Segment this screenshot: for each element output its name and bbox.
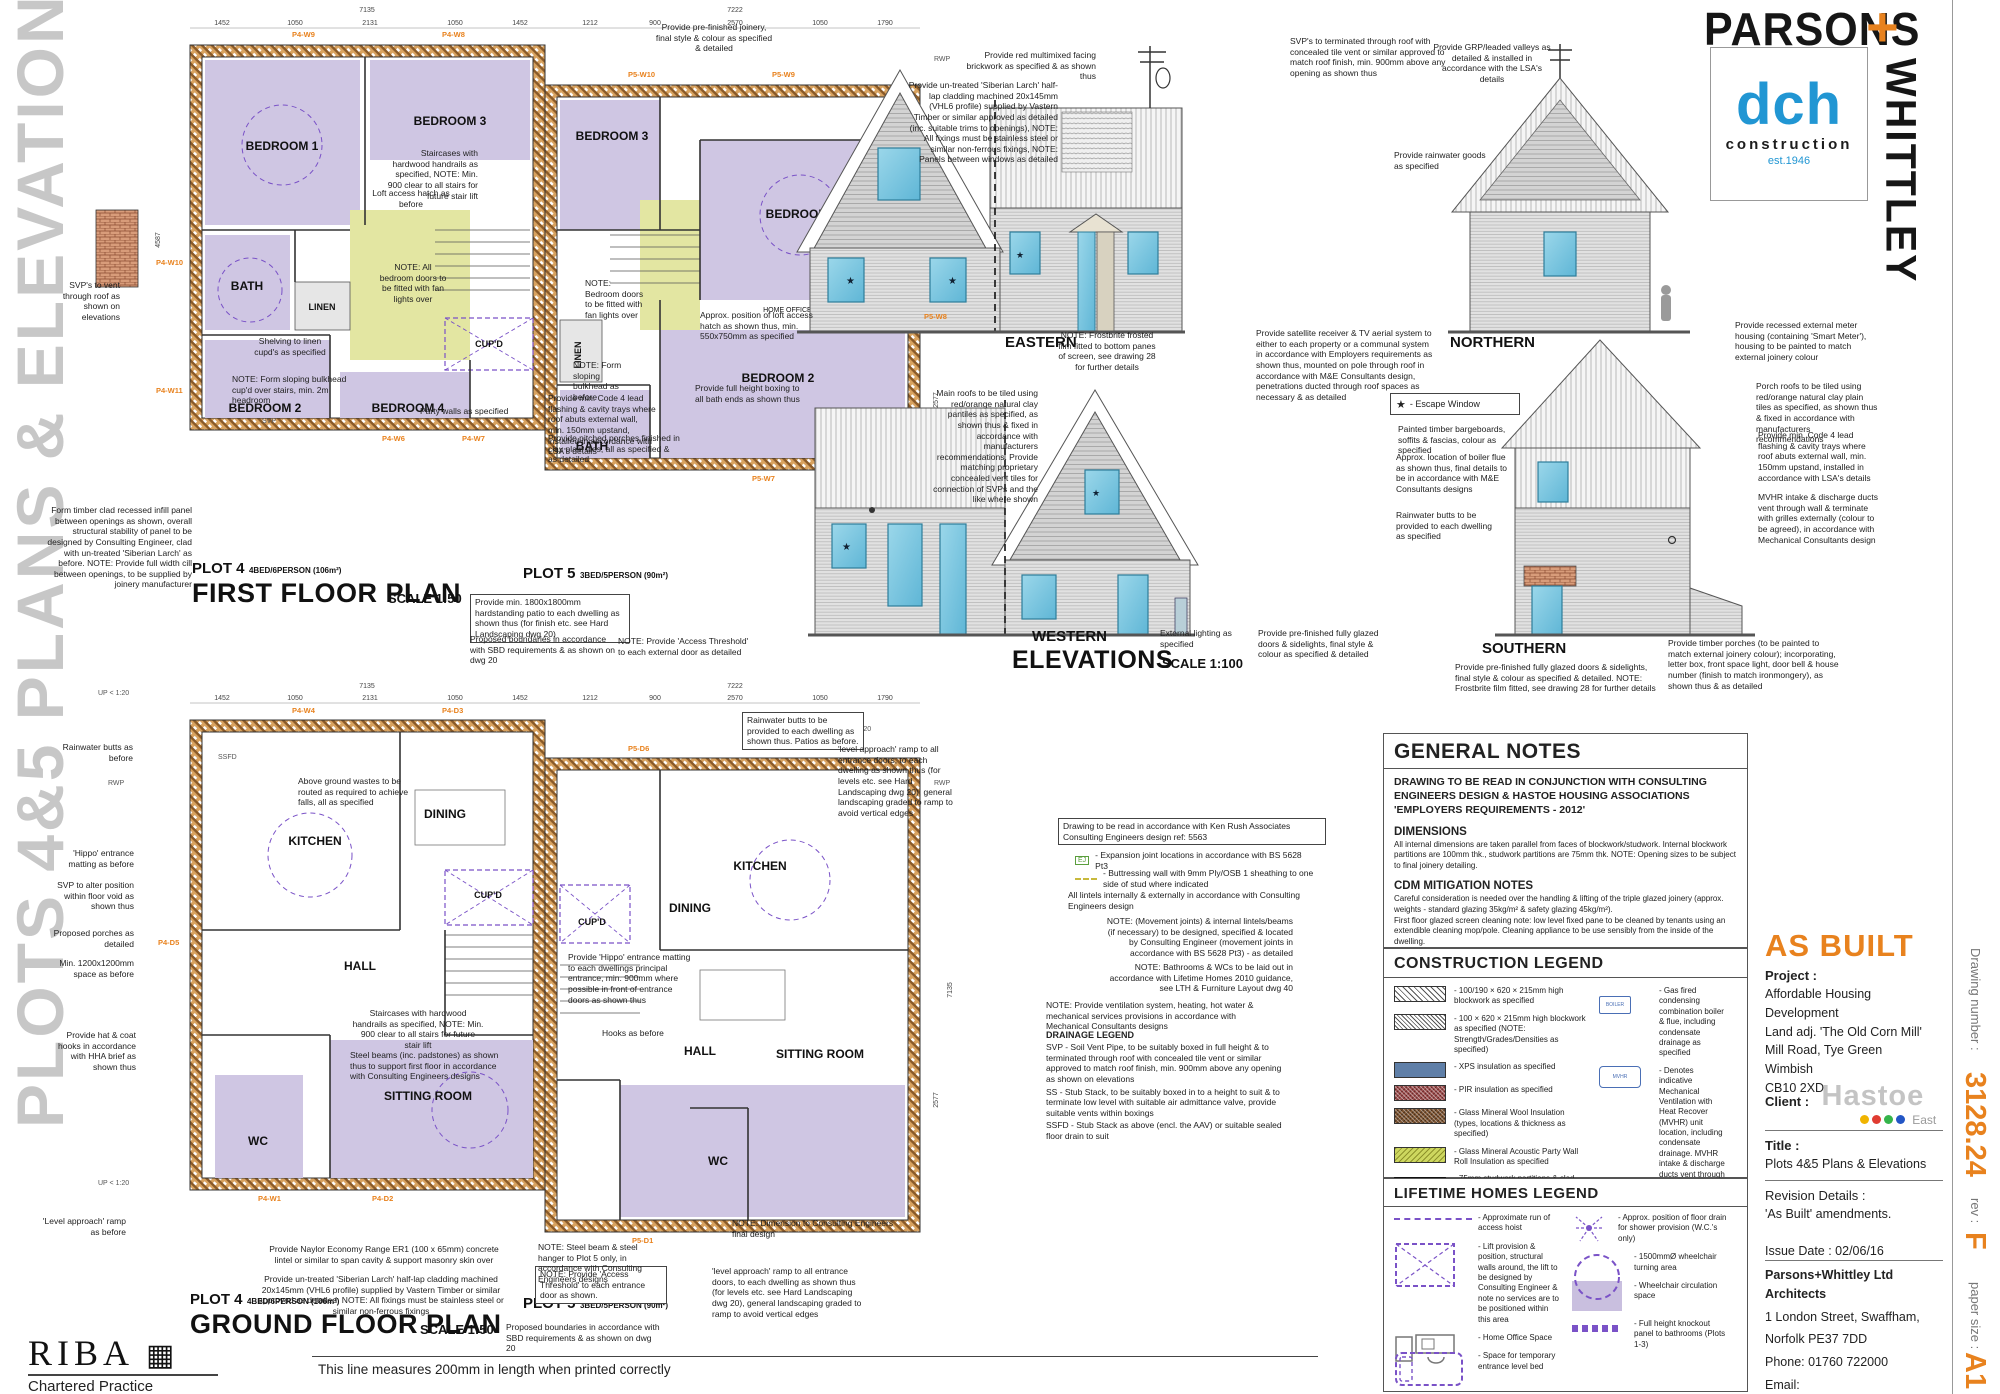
- note-timber-porches: Provide timber porches (to be painted to…: [1668, 638, 1840, 691]
- note-shelving: Shelving to linen cupd's as specified: [250, 336, 330, 357]
- firm-name: Parsons+Whittley Ltd Architects: [1765, 1266, 1947, 1304]
- room-label-p4-cupd: CUP'D: [475, 339, 503, 349]
- rwp-label-2: RWP: [108, 780, 124, 787]
- drawing-number: 3128.24: [1958, 1072, 1991, 1177]
- ff-plot4-spec: 4BED/6PERSON (106m²): [249, 566, 341, 575]
- ssfd-label-1: SSFD: [218, 754, 237, 761]
- western-label: WESTERN: [1032, 628, 1107, 645]
- buttress-symbol: [1075, 878, 1097, 880]
- pir-swatch: [1394, 1085, 1446, 1101]
- blockwork2-swatch: [1394, 1014, 1446, 1030]
- note-steel-hanger: NOTE: Steel beam & steel hanger to Plot …: [538, 1242, 666, 1285]
- note-svp-alter: SVP to alter position within floor void …: [50, 880, 134, 912]
- bed-icon: [1394, 1351, 1472, 1372]
- revision-label: Revision Details :: [1765, 1188, 1947, 1203]
- tag-p4w7: P4-W7: [462, 434, 485, 443]
- tag-p4w4: P4-W4: [292, 706, 315, 715]
- architect-block: Parsons+Whittley Ltd Architects 1 London…: [1765, 1266, 1947, 1394]
- issue-date: Issue Date : 02/06/16: [1765, 1242, 1947, 1261]
- note-staircases-gf: Staircases with hardwood handrails as sp…: [352, 1008, 484, 1051]
- general-notes-title: GENERAL NOTES: [1384, 734, 1747, 769]
- tag-p4w10: P4-W10: [156, 258, 183, 267]
- room-label-g4-hall: HALL: [344, 959, 376, 973]
- svg-text:1452: 1452: [512, 20, 528, 27]
- note-staircases-ff: Staircases with hardwood handrails as sp…: [382, 148, 478, 201]
- tag-p5w7: P5-W7: [752, 474, 775, 483]
- ff-plot5-spec: 3BED/5PERSON (90m²): [580, 571, 668, 580]
- room-label-p4-bedroom3: BEDROOM 3: [414, 114, 487, 128]
- lt-office: - Home Office Space: [1394, 1333, 1562, 1343]
- drainage-ss: SS - Stub Stack, to be suitably boxed in…: [1046, 1087, 1284, 1119]
- turning-circle-icon: [1572, 1252, 1628, 1273]
- note-porches-ff: Provide pitched porches finished in clay…: [548, 433, 680, 465]
- room-label-g5-wc: WC: [708, 1154, 728, 1168]
- lt-drain: - Approx. position of floor drain for sh…: [1572, 1213, 1730, 1244]
- elevations-scale: SCALE 1:100: [1162, 656, 1243, 671]
- dimensions-body: All internal dimensions are taken parall…: [1394, 840, 1737, 872]
- tag-p4w6: P4-W6: [382, 434, 405, 443]
- svg-text:1212: 1212: [582, 20, 598, 27]
- dch-est: est.1946: [1711, 155, 1867, 167]
- ff-plot5-label: PLOT 5: [523, 565, 576, 582]
- tag-p5d6: P5-D6: [628, 744, 649, 753]
- tag-p5w10: P5-W10: [628, 70, 655, 79]
- project-line-1: Affordable Housing Development: [1765, 985, 1947, 1023]
- note-grp-valleys: Provide GRP/leaded valleys as detailed &…: [1432, 42, 1552, 85]
- note-glazed-doors: Provide pre-finished fully glazed doors …: [1258, 628, 1380, 660]
- room-label-g4-cupd: CUP'D: [474, 890, 502, 900]
- note-svp-roof: SVP's to terminated through roof with co…: [1290, 36, 1452, 79]
- svg-text:1212: 1212: [582, 695, 598, 702]
- lifetime-legend-box: LIFETIME HOMES LEGEND - Approximate run …: [1383, 1178, 1748, 1392]
- drawing-number-label: Drawing number :: [1968, 948, 1983, 1051]
- hastoe-dot-blue: [1896, 1115, 1905, 1124]
- room-label-g5-kitchen: KITCHEN: [733, 859, 786, 873]
- note-ventilation: NOTE: Provide ventilation system, heatin…: [1046, 1000, 1261, 1032]
- note-main-roofs: Main roofs to be tiled using red/orange …: [928, 388, 1038, 505]
- room-label-g4-dining: DINING: [424, 807, 466, 821]
- lt-hoist: - Approximate run of access hoist: [1394, 1213, 1562, 1234]
- elevations-title: ELEVATIONS: [1012, 646, 1173, 675]
- acoustic-swatch: [1394, 1147, 1446, 1163]
- svg-text:1050: 1050: [287, 20, 303, 27]
- hastoe-name: Hastoe: [1822, 1080, 1925, 1112]
- lt-lift: - Lift provision & position, structural …: [1394, 1242, 1562, 1325]
- right-strip-divider: [1952, 0, 1953, 1394]
- svg-text:★: ★: [1092, 488, 1100, 498]
- drawing-title: Plots 4&5 Plans & Elevations: [1765, 1155, 1947, 1174]
- project-block: Project : Affordable Housing Development…: [1765, 968, 1947, 1098]
- svg-text:1452: 1452: [214, 695, 230, 702]
- tag-p4d3: P4-D3: [442, 706, 463, 715]
- note-glazed-doors-frost: Provide pre-finished fully glazed doors …: [1455, 662, 1665, 694]
- lt-turning: - 1500mmØ wheelchair turning area: [1572, 1252, 1730, 1273]
- general-notes-intro: DRAWING TO BE READ IN CONJUNCTION WITH C…: [1394, 775, 1737, 818]
- note-meter: Provide recessed external meter housing …: [1735, 320, 1883, 363]
- svg-text:★: ★: [842, 542, 851, 553]
- project-line-3: Mill Road, Tye Green: [1765, 1041, 1947, 1060]
- note-loft-hatch5: Approx. position of loft access hatch as…: [700, 310, 818, 342]
- divider-3: [1765, 1260, 1943, 1261]
- title-label: Title :: [1765, 1138, 1947, 1153]
- drainage-legend-title: DRAINAGE LEGEND: [1046, 1030, 1284, 1040]
- svg-text:900: 900: [649, 695, 661, 702]
- lt-bed: - Space for temporary entrance level bed: [1394, 1351, 1562, 1372]
- note-space-before: Min. 1200x1200mm space as before: [52, 958, 134, 979]
- note-ramp: 'level approach' ramp to all entrance do…: [838, 744, 956, 818]
- home-office-icon: [1394, 1333, 1472, 1343]
- svg-text:★: ★: [846, 276, 855, 287]
- svg-text:7135: 7135: [359, 683, 375, 690]
- note-prefinished-ff: Provide pre-finished joinery, final styl…: [655, 22, 773, 54]
- blockwork1-swatch: [1394, 986, 1446, 1002]
- title-section: Title : Plots 4&5 Plans & Elevations: [1765, 1138, 1947, 1174]
- tag-p5w9: P5-W9: [772, 70, 795, 79]
- as-built-stamp: AS BUILT: [1765, 928, 1914, 964]
- up-ramp-label-3: UP < 1:20: [98, 1180, 129, 1187]
- legend-pir: - PIR insulation as specified: [1394, 1085, 1589, 1101]
- note-satellite: Provide satellite receiver & TV aerial s…: [1256, 328, 1434, 402]
- note-fan-lights: NOTE: All bedroom doors to be fitted wit…: [378, 262, 448, 305]
- svg-text:1050: 1050: [287, 695, 303, 702]
- northern-label: NORTHERN: [1450, 334, 1535, 351]
- legend-blockwork-2: - 100 × 620 × 215mm high blockwork as sp…: [1394, 1014, 1589, 1056]
- drainage-legend: DRAINAGE LEGEND SVP - Soil Vent Pipe, to…: [1046, 1030, 1284, 1142]
- note-movement: NOTE: (Movement joints) & internal linte…: [1098, 916, 1293, 959]
- hastoe-dots: East: [1822, 1111, 1925, 1129]
- drainage-svp: SVP - Soil Vent Pipe, to be suitably box…: [1046, 1042, 1284, 1085]
- note-fan-lights5: NOTE: Bedroom doors to be fitted with fa…: [585, 278, 647, 321]
- svg-text:4587: 4587: [155, 232, 162, 248]
- buttress-text: - Buttressing wall with 9mm Ply/OSB 1 sh…: [1103, 868, 1328, 889]
- dimensions-title: DIMENSIONS: [1394, 826, 1737, 838]
- room-label-p4-linen: LINEN: [309, 302, 336, 312]
- boiler-icon: BOILER: [1599, 986, 1651, 1016]
- svp-label-1: SVP: [262, 418, 276, 425]
- svg-text:7135: 7135: [947, 982, 954, 998]
- tag-p4w1: P4-W1: [258, 1194, 281, 1203]
- paper-size: A1: [1958, 1352, 1991, 1389]
- note-hooks: Provide hat & coat hooks in accordance w…: [48, 1030, 136, 1073]
- issue-date-section: Issue Date : 02/06/16: [1765, 1242, 1947, 1261]
- room-label-g4-sitting: SITTING ROOM: [384, 1089, 472, 1103]
- construction-legend-box: CONSTRUCTION LEGEND - 100/190 × 620 × 21…: [1383, 948, 1748, 1178]
- note-ramp2: 'level approach' ramp to all entrance do…: [712, 1266, 864, 1319]
- scale-check-note: This line measures 200mm in length when …: [318, 1362, 671, 1377]
- firm-address-2: Norfolk PE37 7DD: [1765, 1330, 1947, 1349]
- svg-text:2131: 2131: [362, 695, 378, 702]
- tag-p4d5: P4-D5: [158, 938, 179, 947]
- firm-address-1: 1 London Street, Swaffham,: [1765, 1308, 1947, 1327]
- room-label-g4-kitchen: KITCHEN: [288, 834, 341, 848]
- hoist-icon: [1394, 1213, 1472, 1234]
- legend-acoustic: - Glass Mineral Acoustic Party Wall Roll…: [1394, 1147, 1589, 1168]
- svg-text:★: ★: [1016, 250, 1024, 260]
- svg-text:7222: 7222: [727, 7, 743, 14]
- xps-swatch: [1394, 1062, 1446, 1078]
- note-ramp-before: 'Level approach' ramp as before: [42, 1216, 126, 1237]
- gf-scale: SCALE 1:50: [420, 1322, 494, 1337]
- firm-phone: Phone: 01760 722000: [1765, 1353, 1947, 1372]
- project-label: Project :: [1765, 968, 1947, 983]
- legend-blockwork-1: - 100/190 × 620 × 215mm high blockwork a…: [1394, 986, 1589, 1007]
- svg-text:7222: 7222: [727, 683, 743, 690]
- svg-text:1050: 1050: [447, 695, 463, 702]
- buttress-legend-row: - Buttressing wall with 9mm Ply/OSB 1 sh…: [1075, 868, 1328, 889]
- mvhr-icon: MVHR: [1599, 1066, 1651, 1090]
- floor-drain-icon: [1572, 1213, 1612, 1244]
- riba-logo: RIBA ▦: [28, 1332, 174, 1374]
- riba-portcullis-icon: ▦: [146, 1339, 174, 1372]
- knockout-icon: [1572, 1319, 1628, 1350]
- svg-text:1790: 1790: [877, 695, 893, 702]
- room-label-g5-hall: HALL: [684, 1044, 716, 1058]
- note-larch-elev: Provide un-treated 'Siberian Larch' half…: [908, 80, 1058, 165]
- parsons-plus: +: [1866, 0, 1899, 59]
- note-porches-det: Proposed porches as detailed: [52, 928, 134, 949]
- note-rainwater-goods: Provide rainwater goods as specified: [1394, 150, 1490, 171]
- note-butts-before: Rainwater butts as before: [55, 742, 133, 763]
- note-threshold2: NOTE: Provide 'Access Threshold' to each…: [618, 636, 756, 657]
- divider-1: [1765, 1130, 1943, 1131]
- room-label-p4-bath: BATH: [231, 279, 263, 293]
- note-bath-boxing: Provide full height boxing to all bath e…: [695, 383, 807, 404]
- ff-plot4-heading: PLOT 4 4BED/6PERSON (106m²): [192, 560, 341, 578]
- note-steel-beams: Steel beams (inc. padstones) as shown th…: [350, 1050, 502, 1082]
- note-ken-rush: Drawing to be read in accordance with Ke…: [1058, 818, 1326, 845]
- drainage-ssfd: SSFD - Stub Stack as above (encl. the AA…: [1046, 1120, 1284, 1141]
- southern-label: SOUTHERN: [1482, 640, 1566, 657]
- svg-text:1050: 1050: [447, 20, 463, 27]
- riba-chartered: Chartered Practice: [28, 1374, 218, 1394]
- rev-label: rev :: [1968, 1198, 1983, 1223]
- note-hooks-before: Hooks as before: [602, 1028, 664, 1039]
- svg-text:1050: 1050: [812, 695, 828, 702]
- paper-size-label: paper size :: [1968, 1282, 1983, 1349]
- dch-logo-box: dch construction est.1946: [1710, 47, 1868, 201]
- note-dim-engineers: NOTE: Dimension to Consulting Engineers …: [732, 1218, 904, 1239]
- ff-plot5-heading: PLOT 5 3BED/5PERSON (90m²): [523, 565, 668, 583]
- lift-icon: [1394, 1242, 1472, 1325]
- hastoe-dot-red: [1872, 1115, 1881, 1124]
- note-lintel: Provide Naylor Economy Range ER1 (100 x …: [268, 1244, 500, 1265]
- svg-text:2577: 2577: [933, 1092, 940, 1108]
- whittley-logo: WHITTLEY: [1876, 58, 1925, 284]
- divider-2: [1765, 1180, 1943, 1181]
- cdm-body-2: First floor glazed screen cleaning note:…: [1394, 916, 1737, 948]
- svg-text:2131: 2131: [362, 20, 378, 27]
- room-label-g5-cupd: CUP'D: [578, 917, 606, 927]
- note-lighting: External lighting as specified: [1160, 628, 1242, 649]
- note-larch-gf: Provide un-treated 'Siberian Larch' half…: [258, 1274, 504, 1317]
- note-party-walls-ff: Party walls as specified: [420, 406, 512, 417]
- rev-value: F: [1958, 1232, 1991, 1250]
- tag-p4w9: P4-W9: [292, 30, 315, 39]
- legend-boiler: BOILER - Gas fired condensing combinatio…: [1599, 986, 1729, 1059]
- room-label-g4-wc: WC: [248, 1134, 268, 1148]
- project-line-2: Land adj. 'The Old Corn Mill': [1765, 1023, 1947, 1042]
- tag-p4d2: P4-D2: [372, 1194, 393, 1203]
- hastoe-dot-yellow: [1860, 1115, 1869, 1124]
- dch-logo: dch: [1711, 76, 1867, 134]
- scale-check-line: [312, 1356, 1318, 1357]
- note-hippo: Provide 'Hippo' entrance matting to each…: [568, 952, 696, 1005]
- svg-text:1452: 1452: [512, 695, 528, 702]
- up-ramp-label-1: UP < 1:20: [98, 690, 129, 697]
- southern-elevation: [1495, 340, 1755, 635]
- legend-xps: - XPS insulation as specified: [1394, 1062, 1589, 1078]
- svg-text:2570: 2570: [727, 695, 743, 702]
- note-frostbrite: NOTE: Frostbrite frosted film fitted to …: [1058, 330, 1156, 373]
- ff-scale: SCALE 1:50: [388, 591, 462, 606]
- general-notes-box: GENERAL NOTES DRAWING TO BE READ IN CONJ…: [1383, 733, 1748, 948]
- note-mvhr-elev: MVHR intake & discharge ducts vent throu…: [1758, 492, 1880, 545]
- legend-gmw: - Glass Mineral Wool Insulation (types, …: [1394, 1108, 1589, 1139]
- note-lintels: All lintels internally & externally in a…: [1068, 890, 1308, 911]
- room-label-p4-bedroom1: BEDROOM 1: [246, 139, 319, 153]
- gmw-swatch: [1394, 1108, 1446, 1124]
- dch-construction: construction: [1711, 136, 1867, 153]
- client-label: Client :: [1765, 1094, 1809, 1109]
- hastoe-logo: Hastoe East: [1822, 1082, 1925, 1129]
- revision-section: Revision Details : 'As Built' amendments…: [1765, 1188, 1947, 1224]
- ej-symbol: EJ: [1075, 856, 1089, 865]
- northern-elevation: [1448, 44, 1690, 332]
- note-bulkhead: NOTE: Form sloping bulkhead cup'd over s…: [232, 374, 357, 406]
- hastoe-east: East: [1912, 1113, 1921, 1122]
- ff-plot4-label: PLOT 4: [192, 560, 245, 577]
- note-hippo-before: 'Hippo' entrance matting as before: [50, 848, 134, 869]
- note-boundaries-gf: Proposed boundaries in accordance with S…: [506, 1322, 661, 1354]
- cdm-body-1: Careful consideration is needed over the…: [1394, 894, 1737, 916]
- gf-plot4-label: PLOT 4: [190, 1291, 243, 1308]
- note-bathrooms-wcs: NOTE: Bathrooms & WCs to be laid out in …: [1105, 962, 1293, 994]
- firm-email: Email: info@parsonswhittley.co.uk: [1765, 1376, 1947, 1394]
- note-infill-panel: Form timber clad recessed infill panel b…: [40, 505, 192, 590]
- svg-text:1452: 1452: [214, 20, 230, 27]
- lifetime-legend-title: LIFETIME HOMES LEGEND: [1384, 1179, 1747, 1207]
- room-label-p5-bedroom3: BEDROOM 3: [576, 129, 649, 143]
- note-lead-flashing-s: Provide min. Code 4 lead flashing & cavi…: [1758, 430, 1874, 483]
- svg-text:★: ★: [948, 276, 957, 287]
- hastoe-dot-green: [1884, 1115, 1893, 1124]
- tag-p5w8: P5-W8: [924, 312, 947, 321]
- lt-knockout: - Full height knockout panel to bathroom…: [1572, 1319, 1730, 1350]
- room-label-g5-dining: DINING: [669, 901, 711, 915]
- note-boundaries-ff: Proposed boundaries in accordance with S…: [470, 634, 622, 666]
- note-brickwork: Provide red multimixed facing brickwork …: [958, 50, 1096, 82]
- svg-text:7135: 7135: [359, 7, 375, 14]
- cdm-title: CDM MITIGATION NOTES: [1394, 880, 1737, 892]
- drawing-sheet: PLOTS 4&5 PLANS & ELEVATIONS: [0, 0, 2000, 1394]
- client-block: Client : Hastoe East: [1765, 1082, 1947, 1129]
- rwp-label-1: RWP: [934, 56, 950, 63]
- tag-p4w11: P4-W11: [156, 386, 183, 395]
- room-label-g5-sitting: SITTING ROOM: [776, 1047, 864, 1061]
- note-butts-elev: Rainwater butts to be provided to each d…: [1396, 510, 1502, 542]
- project-line-4: Wimbish: [1765, 1060, 1947, 1079]
- note-boiler-flue: Approx. location of boiler flue as shown…: [1396, 452, 1510, 495]
- tag-p4w8: P4-W8: [442, 30, 465, 39]
- note-svp-vent: SVP's to vent through roof as shown on e…: [48, 280, 120, 323]
- revision-value: 'As Built' amendments.: [1765, 1205, 1947, 1224]
- construction-legend-title: CONSTRUCTION LEGEND: [1384, 949, 1747, 978]
- note-wastes: Above ground wastes to be routed as requ…: [298, 776, 420, 808]
